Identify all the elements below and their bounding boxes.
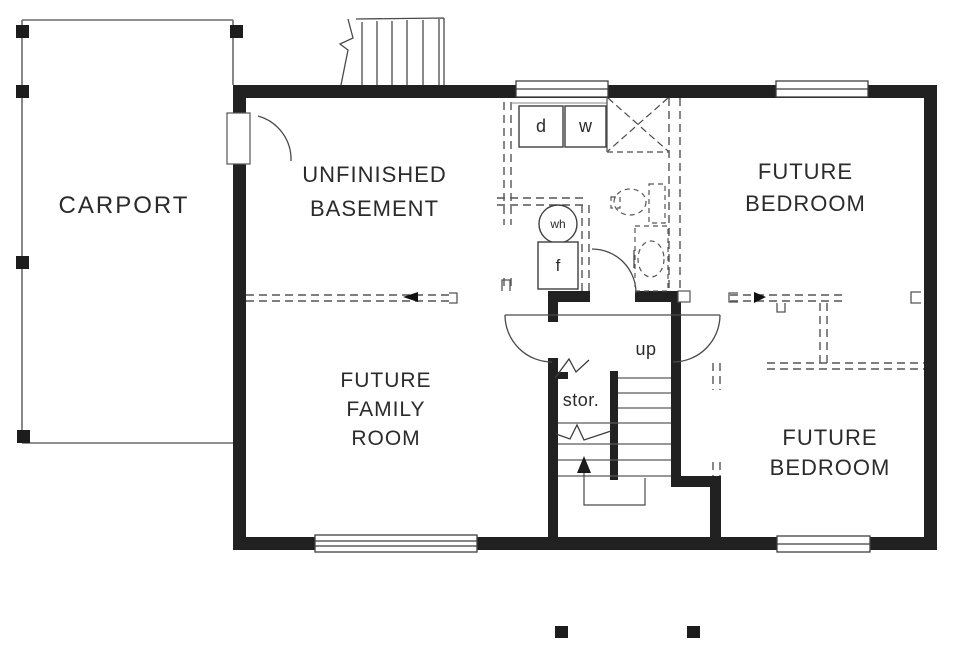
stair-treads-upper xyxy=(618,378,671,408)
exterior-stairs xyxy=(340,18,444,85)
water-heater-label: wh xyxy=(539,206,577,243)
carport-label: CARPORT xyxy=(40,190,208,221)
hall-future-stub-2 xyxy=(713,462,720,476)
stair-stringer xyxy=(610,371,618,480)
bracket-4 xyxy=(449,293,457,303)
carport-structure xyxy=(22,20,233,443)
family-room-door-swing xyxy=(505,315,552,362)
washer-label: w xyxy=(565,106,606,147)
break-line xyxy=(340,19,353,85)
basement-label: UNFINISHED BASEMENT xyxy=(282,158,467,226)
dryer-label: d xyxy=(519,106,563,147)
vanity-counter xyxy=(649,184,665,223)
toilet-bowl xyxy=(638,241,664,277)
closet-wall-vertical xyxy=(820,303,827,363)
family-room-label: FUTURE FAMILY ROOM xyxy=(295,366,477,453)
furnace-label: f xyxy=(538,242,578,289)
closet-wall-horizontal xyxy=(767,363,924,369)
bracket-5 xyxy=(502,280,510,291)
laundry-wall-left xyxy=(504,102,511,225)
wall-end-cap xyxy=(678,291,690,302)
bracket-3 xyxy=(777,303,785,312)
doors xyxy=(227,113,720,362)
window-top-right xyxy=(776,81,868,97)
storage-label: stor. xyxy=(552,385,610,416)
toilet-outline xyxy=(635,226,668,291)
stairs-up-label: up xyxy=(626,334,666,365)
hall-future-stub xyxy=(713,363,720,390)
bath-bedroom-wall xyxy=(669,98,680,291)
bedroom-divider-future-wall xyxy=(730,295,843,301)
family-room-future-wall xyxy=(246,295,454,301)
window-bottom-family xyxy=(315,535,477,552)
bathroom-fixtures xyxy=(611,184,668,291)
sink xyxy=(614,189,646,215)
floor-plan: CARPORT UNFINISHED BASEMENT FUTURE BEDRO… xyxy=(0,0,968,664)
floorplan-linework xyxy=(0,0,968,664)
bedroom-top-label: FUTURE BEDROOM xyxy=(713,156,898,220)
shower-stall xyxy=(607,97,669,152)
bathroom-door xyxy=(592,249,636,293)
bracket-2 xyxy=(911,292,921,303)
staircase xyxy=(555,359,671,505)
carport-posts xyxy=(16,25,243,443)
deck-posts xyxy=(555,626,700,638)
window-top-left xyxy=(516,81,608,97)
furnace-wall-right xyxy=(582,205,589,291)
carport-entry-door xyxy=(227,113,291,164)
bedroom-bottom-label: FUTURE BEDROOM xyxy=(737,423,923,483)
break-line-storage-mid xyxy=(556,425,611,440)
window-bottom-bedroom xyxy=(777,536,870,552)
